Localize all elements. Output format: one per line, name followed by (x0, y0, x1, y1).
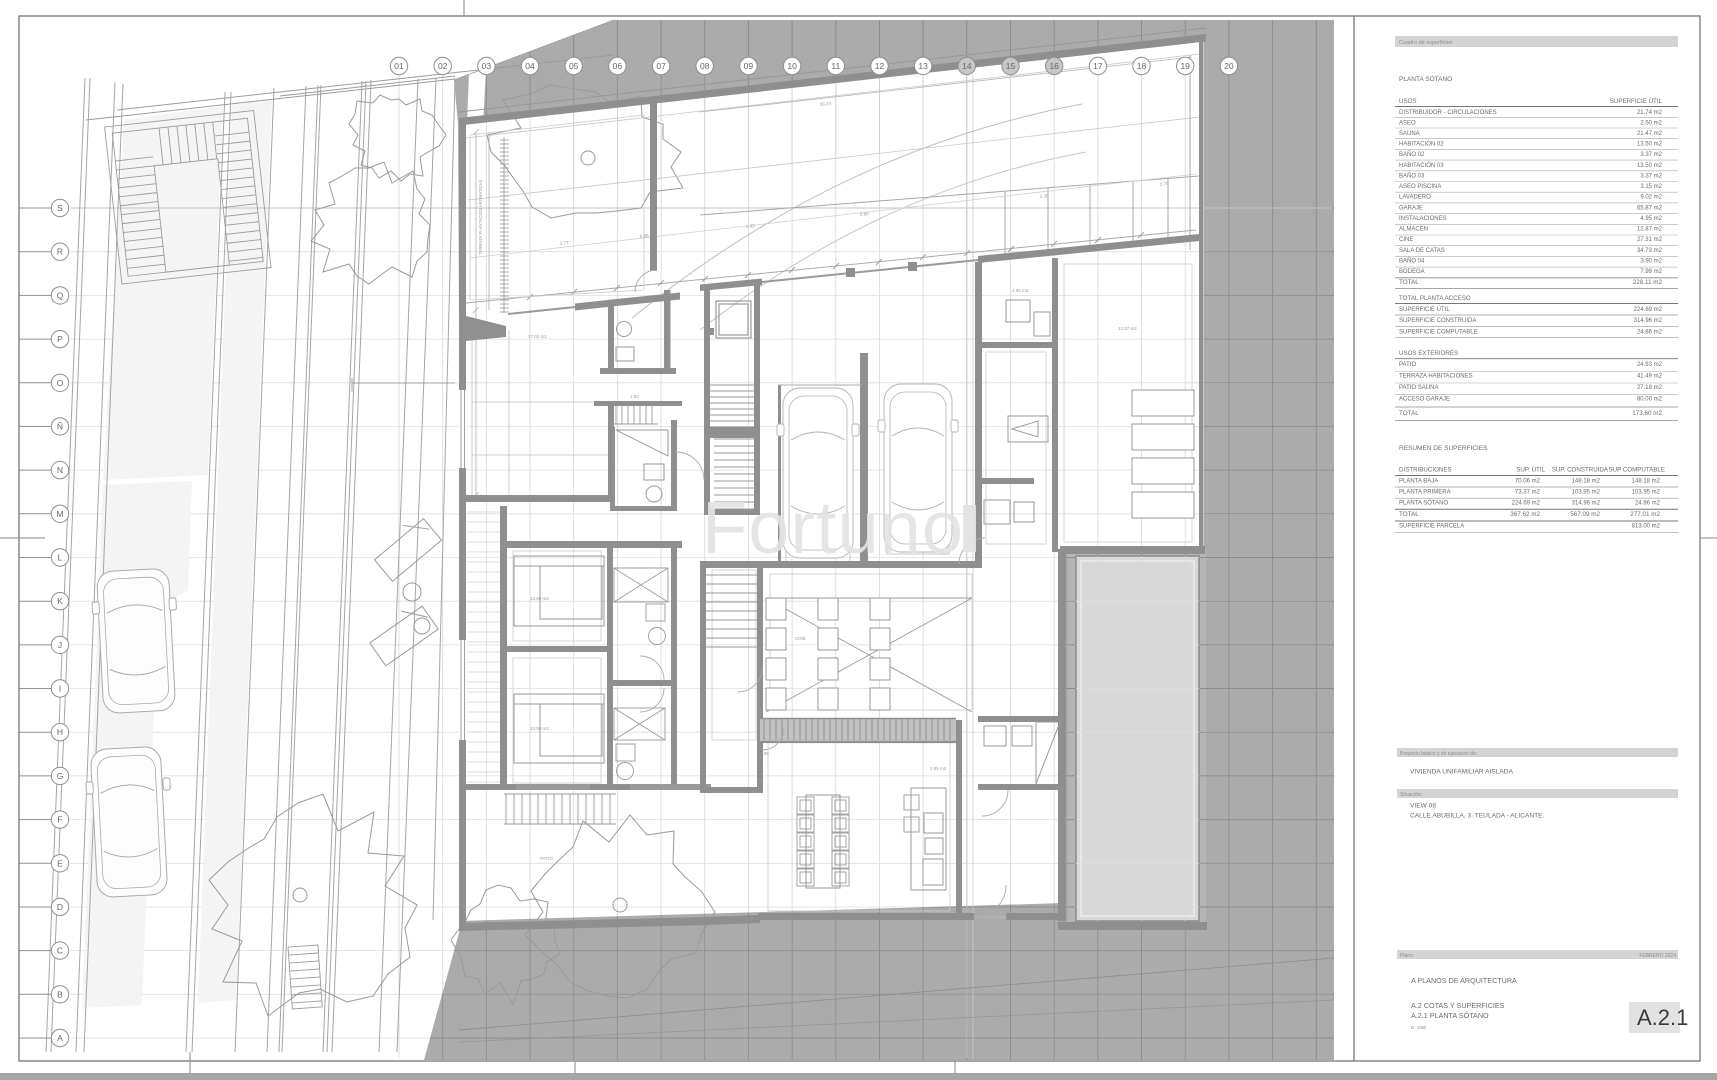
svg-text:12.87 m2: 12.87 m2 (1637, 227, 1663, 233)
svg-text:3.15 m2: 3.15 m2 (1640, 184, 1662, 190)
svg-text:PLANTA SÓTANO: PLANTA SÓTANO (1399, 500, 1448, 507)
svg-text:CALLE ABUBILLA, 3. TEULADA - A: CALLE ABUBILLA, 3. TEULADA - ALICANTE. (1410, 813, 1545, 820)
svg-text:J: J (58, 640, 62, 650)
svg-text:148.18 m2: 148.18 m2 (1632, 479, 1661, 485)
svg-text:314.96 m2: 314.96 m2 (1634, 318, 1663, 324)
svg-text:Q: Q (57, 290, 64, 300)
svg-text:SUP. CONSTRUIDA: SUP. CONSTRUIDA (1552, 467, 1609, 474)
svg-text:E: 1/50: E: 1/50 (1411, 1025, 1427, 1031)
svg-text:VIVIENDA UNIFAMILIAR AISLADA: VIVIENDA UNIFAMILIAR AISLADA (1410, 769, 1514, 776)
svg-text:TOTAL PLANTA ACCESO: TOTAL PLANTA ACCESO (1399, 295, 1471, 302)
svg-text:BODEGA: BODEGA (1399, 269, 1425, 275)
svg-text:24.86 m2: 24.86 m2 (1635, 501, 1661, 507)
svg-text:FEBRERO 2024: FEBRERO 2024 (1639, 953, 1676, 959)
svg-text:Cuadro de superficies: Cuadro de superficies (1399, 40, 1453, 46)
svg-text:0.98: 0.98 (640, 233, 650, 239)
svg-text:3.90 m2: 3.90 m2 (1640, 258, 1662, 264)
svg-text:18: 18 (1137, 61, 1147, 71)
svg-text:12: 12 (875, 61, 885, 71)
svg-text:17: 17 (1093, 61, 1103, 71)
svg-text:173.60 m2: 173.60 m2 (1632, 410, 1662, 417)
svg-text:VIEW 08: VIEW 08 (1410, 803, 1436, 810)
svg-text:3.77: 3.77 (560, 240, 570, 246)
svg-text:SUP. ÚTIL: SUP. ÚTIL (1516, 467, 1545, 474)
svg-text:SUPERFICIE ÚTIL: SUPERFICIE ÚTIL (1399, 306, 1450, 313)
svg-text:INSTALACIONES: INSTALACIONES (1399, 216, 1447, 222)
svg-text:21.74 m2: 21.74 m2 (1637, 110, 1663, 116)
svg-text:12.87 m2: 12.87 m2 (1118, 326, 1137, 331)
svg-text:A: A (57, 1033, 63, 1043)
svg-text:Plano:: Plano: (1400, 953, 1414, 959)
svg-text:A.2 COTAS Y SUPERFICIES: A.2 COTAS Y SUPERFICIES (1411, 1001, 1505, 1010)
svg-text:PATIO: PATIO (1399, 362, 1416, 368)
svg-text:11: 11 (831, 61, 840, 71)
svg-text:BAÑO 04: BAÑO 04 (1399, 257, 1425, 264)
svg-text:16: 16 (1049, 61, 1059, 71)
svg-text:BAÑO 03: BAÑO 03 (1399, 172, 1425, 179)
svg-text:41.49 m2: 41.49 m2 (1637, 373, 1663, 379)
svg-text:1.50: 1.50 (630, 394, 639, 399)
svg-text:PATIO: PATIO (540, 856, 553, 861)
svg-text:1.93: 1.93 (746, 223, 756, 229)
svg-text:DISTRIBUIDOR - CIRCULACIONES: DISTRIBUIDOR - CIRCULACIONES (1399, 110, 1497, 116)
svg-text:65.87 m2: 65.87 m2 (1637, 205, 1663, 211)
svg-text:13: 13 (918, 61, 928, 71)
svg-text:224.69 m2: 224.69 m2 (1512, 501, 1541, 507)
svg-text:Situación:: Situación: (1400, 792, 1422, 798)
svg-text:2.85 m2: 2.85 m2 (930, 766, 947, 771)
svg-text:P: P (57, 334, 63, 344)
svg-text:14: 14 (962, 61, 972, 71)
svg-text:13.50 m2: 13.50 m2 (1637, 163, 1663, 169)
svg-text:SUPERFICIE CONSTRUIDA: SUPERFICIE CONSTRUIDA (1399, 318, 1476, 324)
svg-text:2.39: 2.39 (1040, 193, 1050, 199)
svg-text:SALA DE CATAS: SALA DE CATAS (1399, 248, 1445, 254)
svg-text:2.50 m2: 2.50 m2 (1640, 121, 1662, 127)
svg-text:4.95 m2: 4.95 m2 (1012, 288, 1029, 293)
svg-text:B: B (57, 989, 63, 999)
svg-text:70.06 m2: 70.06 m2 (1515, 479, 1541, 485)
svg-text:D: D (57, 902, 63, 912)
svg-text:TERRAZA PLANTACION AROMATICAS: TERRAZA PLANTACION AROMATICAS (478, 180, 483, 255)
svg-text:05: 05 (569, 61, 579, 71)
svg-text:08: 08 (700, 61, 710, 71)
svg-text:3.37 m2: 3.37 m2 (1640, 173, 1662, 179)
svg-text:ALMACÉN: ALMACÉN (1399, 226, 1428, 233)
svg-text:73.37 m2: 73.37 m2 (1515, 490, 1541, 496)
svg-text:SUPERFICIE PARCELA: SUPERFICIE PARCELA (1399, 524, 1464, 530)
svg-text:CINE: CINE (795, 636, 806, 641)
svg-text:Proyecto básico y de ejecución: Proyecto básico y de ejecución de: (1400, 751, 1477, 757)
svg-text:24.86 m2: 24.86 m2 (1637, 329, 1663, 335)
svg-text:SAUNA: SAUNA (1399, 131, 1420, 137)
svg-text:TERRAZA HABITACIONES: TERRAZA HABITACIONES (1399, 373, 1473, 379)
svg-text:HABITACIÓN 02: HABITACIÓN 02 (1399, 141, 1444, 148)
svg-text:21.47 m2: 21.47 m2 (1637, 131, 1663, 137)
svg-text:GARAJE: GARAJE (1399, 205, 1423, 211)
svg-text:H: H (57, 727, 63, 737)
svg-text:PATIO SAUNA: PATIO SAUNA (1399, 385, 1438, 391)
svg-text:A.2.1 PLANTA SÓTANO: A.2.1 PLANTA SÓTANO (1411, 1011, 1489, 1020)
svg-text:9.80: 9.80 (860, 211, 870, 217)
svg-text:04: 04 (525, 61, 535, 71)
svg-text:10: 10 (787, 61, 797, 71)
svg-text:PLANTA PRIMERA: PLANTA PRIMERA (1399, 490, 1451, 496)
svg-text:07: 07 (656, 61, 666, 71)
svg-text:CINE: CINE (1399, 237, 1413, 243)
svg-text:3.37 m2: 3.37 m2 (1640, 152, 1662, 158)
svg-text:K: K (57, 596, 63, 606)
svg-text:224.69 m2: 224.69 m2 (1634, 307, 1663, 313)
svg-text:20: 20 (1224, 61, 1234, 71)
svg-text:06: 06 (613, 61, 623, 71)
svg-text:L: L (58, 553, 63, 563)
svg-text:17.02 m2: 17.02 m2 (528, 334, 547, 339)
svg-text:01: 01 (394, 61, 404, 71)
svg-text:SUPERFICIE ÚTIL: SUPERFICIE ÚTIL (1610, 98, 1663, 105)
svg-text:TOTAL: TOTAL (1399, 279, 1419, 286)
svg-text:M: M (56, 509, 63, 519)
svg-text:Ñ: Ñ (57, 421, 63, 431)
svg-text:C: C (57, 946, 63, 956)
svg-text:80.00 m2: 80.00 m2 (1637, 397, 1663, 403)
svg-text:314.96 m2: 314.96 m2 (1572, 501, 1601, 507)
svg-text:277.01 m2: 277.01 m2 (1630, 511, 1660, 518)
svg-text:19: 19 (1180, 61, 1190, 71)
svg-text:USOS: USOS (1399, 98, 1417, 105)
svg-text:ASEO PISCINA: ASEO PISCINA (1399, 184, 1441, 190)
svg-text:O: O (57, 378, 64, 388)
svg-text:R: R (57, 247, 63, 257)
svg-text:34.73 m2: 34.73 m2 (1637, 248, 1663, 254)
svg-text:BAÑO 02: BAÑO 02 (1399, 151, 1425, 158)
svg-text:24.93 m2: 24.93 m2 (1637, 362, 1663, 368)
svg-text:SUP COMPUTABLE: SUP COMPUTABLE (1608, 467, 1665, 474)
svg-text:27.18 m2: 27.18 m2 (1637, 385, 1663, 391)
svg-text:TOTAL: TOTAL (1399, 511, 1419, 518)
svg-text:PLANTA SÓTANO: PLANTA SÓTANO (1399, 74, 1452, 83)
svg-text:SUPERFICIE COMPUTABLE: SUPERFICIE COMPUTABLE (1399, 329, 1478, 335)
svg-text:03: 03 (482, 61, 492, 71)
svg-text:148.18 m2: 148.18 m2 (1572, 479, 1601, 485)
svg-text:27.31 m2: 27.31 m2 (1637, 237, 1663, 243)
svg-text:G: G (57, 771, 64, 781)
svg-text:9.02 m2: 9.02 m2 (1640, 195, 1662, 201)
svg-text:USOS EXTERIORES: USOS EXTERIORES (1399, 350, 1458, 357)
svg-text:F: F (57, 815, 62, 825)
svg-text:I: I (59, 684, 61, 694)
svg-text:PLANTA BAJA: PLANTA BAJA (1399, 479, 1438, 485)
svg-text:4.95 m2: 4.95 m2 (1640, 216, 1662, 222)
svg-text:S: S (57, 203, 63, 213)
svg-text:228.11 m2: 228.11 m2 (1633, 279, 1663, 286)
svg-text:Fortuno: Fortuno (702, 486, 964, 569)
svg-text:N: N (57, 465, 63, 475)
svg-text:DISTRIBUCIONES: DISTRIBUCIONES (1399, 467, 1452, 474)
svg-text:ASEO: ASEO (1399, 121, 1416, 127)
svg-text:813.00 m2: 813.00 m2 (1632, 524, 1661, 530)
svg-text:15: 15 (1006, 61, 1016, 71)
svg-text:2.70: 2.70 (1160, 181, 1170, 187)
svg-text:09: 09 (744, 61, 754, 71)
svg-text:567.09 m2: 567.09 m2 (1570, 511, 1600, 518)
svg-text:02: 02 (438, 61, 448, 71)
svg-text:ACCESO GARAJE: ACCESO GARAJE (1399, 397, 1450, 403)
svg-text:HABITACIÓN 03: HABITACIÓN 03 (1399, 162, 1444, 169)
svg-text:LAVADERO: LAVADERO (1399, 195, 1431, 201)
svg-text:103.95 m2: 103.95 m2 (1632, 490, 1661, 496)
svg-text:103.95 m2: 103.95 m2 (1572, 490, 1601, 496)
svg-text:A.2.1: A.2.1 (1637, 1005, 1688, 1030)
svg-text:367.62 m2: 367.62 m2 (1510, 511, 1540, 518)
svg-text:7.99 m2: 7.99 m2 (1640, 269, 1662, 275)
svg-text:RESUMEN DE SUPERFICIES: RESUMEN DE SUPERFICIES (1399, 445, 1488, 452)
svg-text:13.50 m2: 13.50 m2 (1637, 142, 1663, 148)
svg-text:E: E (57, 858, 63, 868)
svg-text:TOTAL: TOTAL (1399, 410, 1419, 417)
svg-text:A PLANOS DE ARQUITECTURA: A PLANOS DE ARQUITECTURA (1411, 976, 1517, 985)
